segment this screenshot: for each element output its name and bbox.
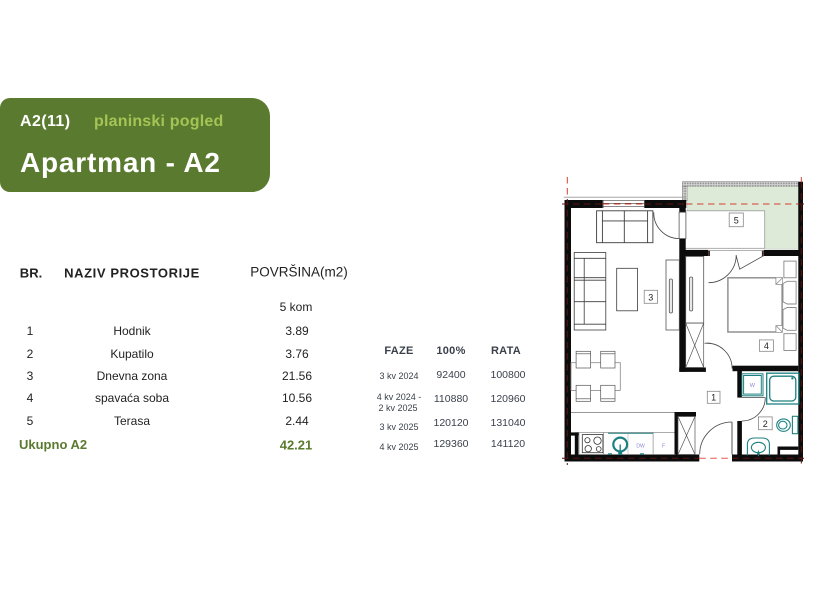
svg-text:4: 4 — [764, 341, 769, 351]
svg-text:5: 5 — [734, 216, 739, 226]
svg-text:DW: DW — [636, 444, 645, 450]
svg-text:F: F — [662, 444, 665, 450]
svg-text:1: 1 — [711, 393, 716, 403]
svg-text:2: 2 — [763, 419, 768, 429]
svg-text:3: 3 — [648, 292, 653, 302]
svg-text:W: W — [750, 383, 756, 389]
